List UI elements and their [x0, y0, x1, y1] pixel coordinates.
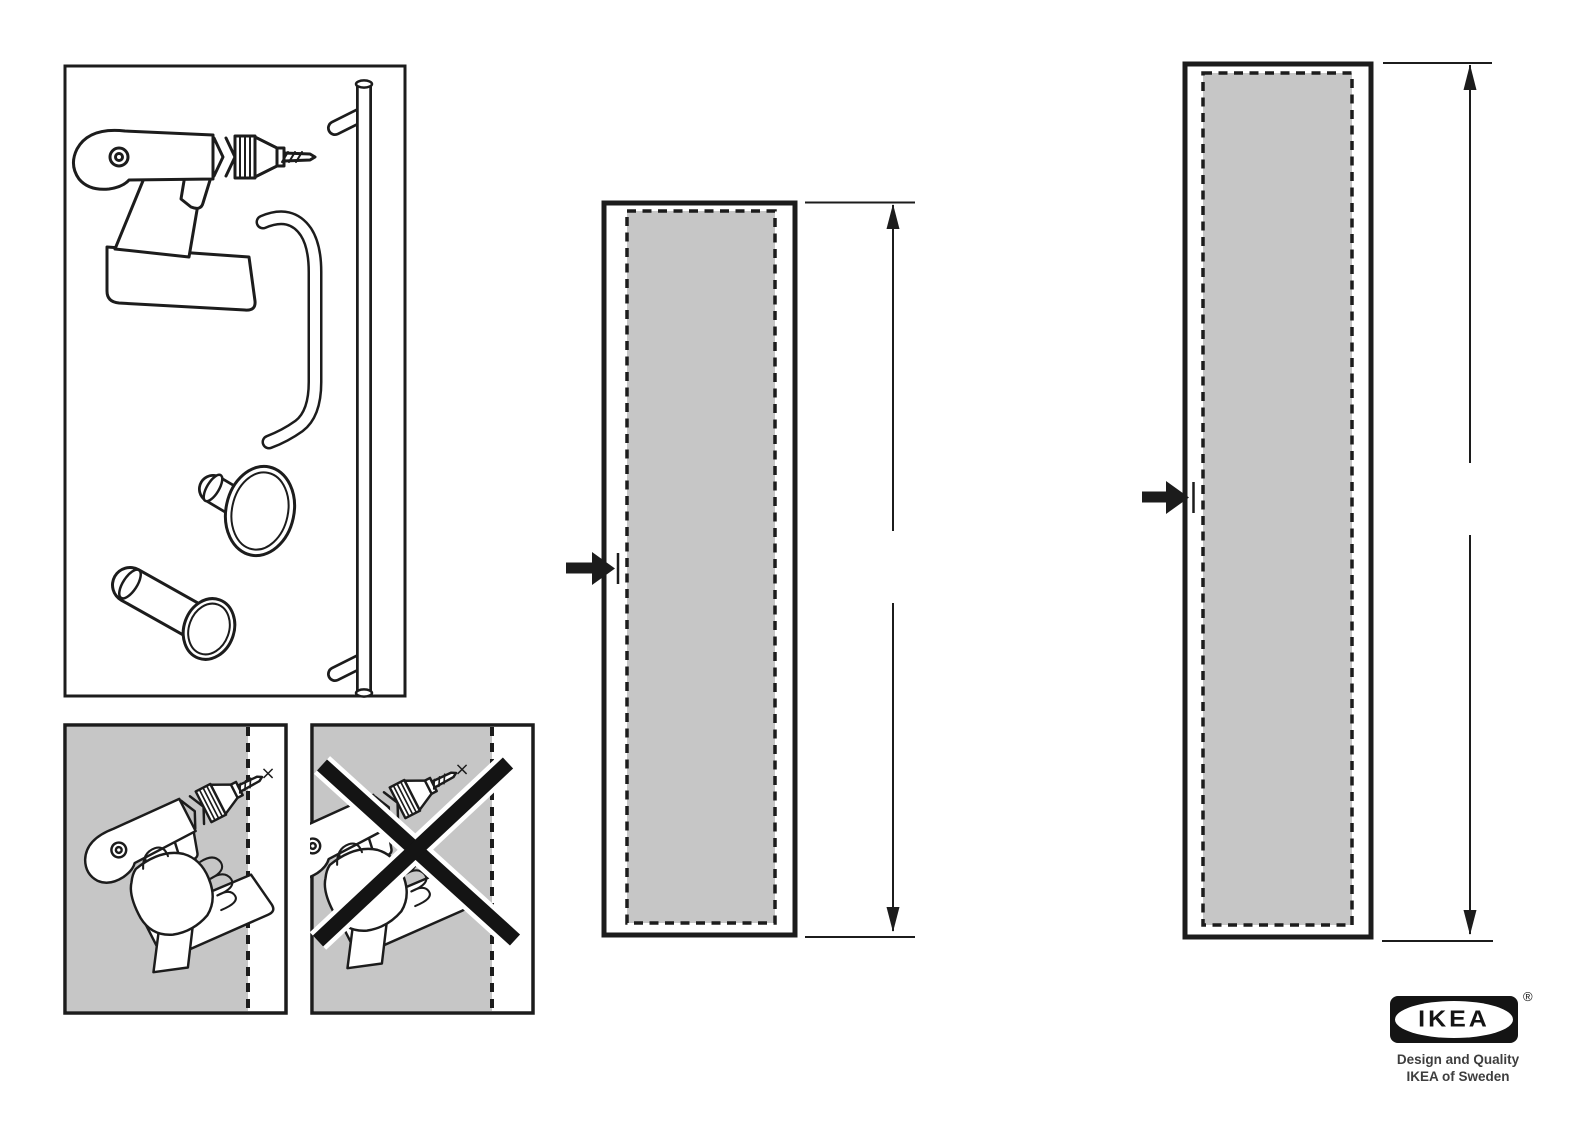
- tools-box-figure: [63, 64, 407, 698]
- ikea-tagline: Design and Quality IKEA of Sweden: [1378, 1051, 1538, 1085]
- height-dimension-line: [805, 203, 915, 938]
- door-front-dashed-area: [627, 211, 775, 923]
- door-figure-medium: [560, 195, 920, 945]
- registered-trademark-symbol: ®: [1523, 989, 1533, 1004]
- tagline-line-2: IKEA of Sweden: [1378, 1068, 1538, 1085]
- door-front-dashed-area: [1203, 73, 1352, 925]
- drill-point-mark: ×: [454, 759, 469, 780]
- tagline-line-1: Design and Quality: [1378, 1051, 1538, 1068]
- instruction-sheet: × ×: [0, 0, 1587, 1123]
- drill-point-mark: ×: [260, 763, 275, 784]
- ikea-logo-ellipse: IKEA: [1395, 1001, 1513, 1038]
- ikea-logo-wordmark: IKEA: [1418, 1006, 1490, 1033]
- ikea-logo: IKEA: [1390, 996, 1518, 1043]
- drill-incorrect-panel: ×: [310, 723, 535, 1015]
- door-figure-tall: [1120, 55, 1540, 955]
- drill-correct-panel: ×: [63, 723, 288, 1015]
- height-dimension-line: [1382, 63, 1493, 941]
